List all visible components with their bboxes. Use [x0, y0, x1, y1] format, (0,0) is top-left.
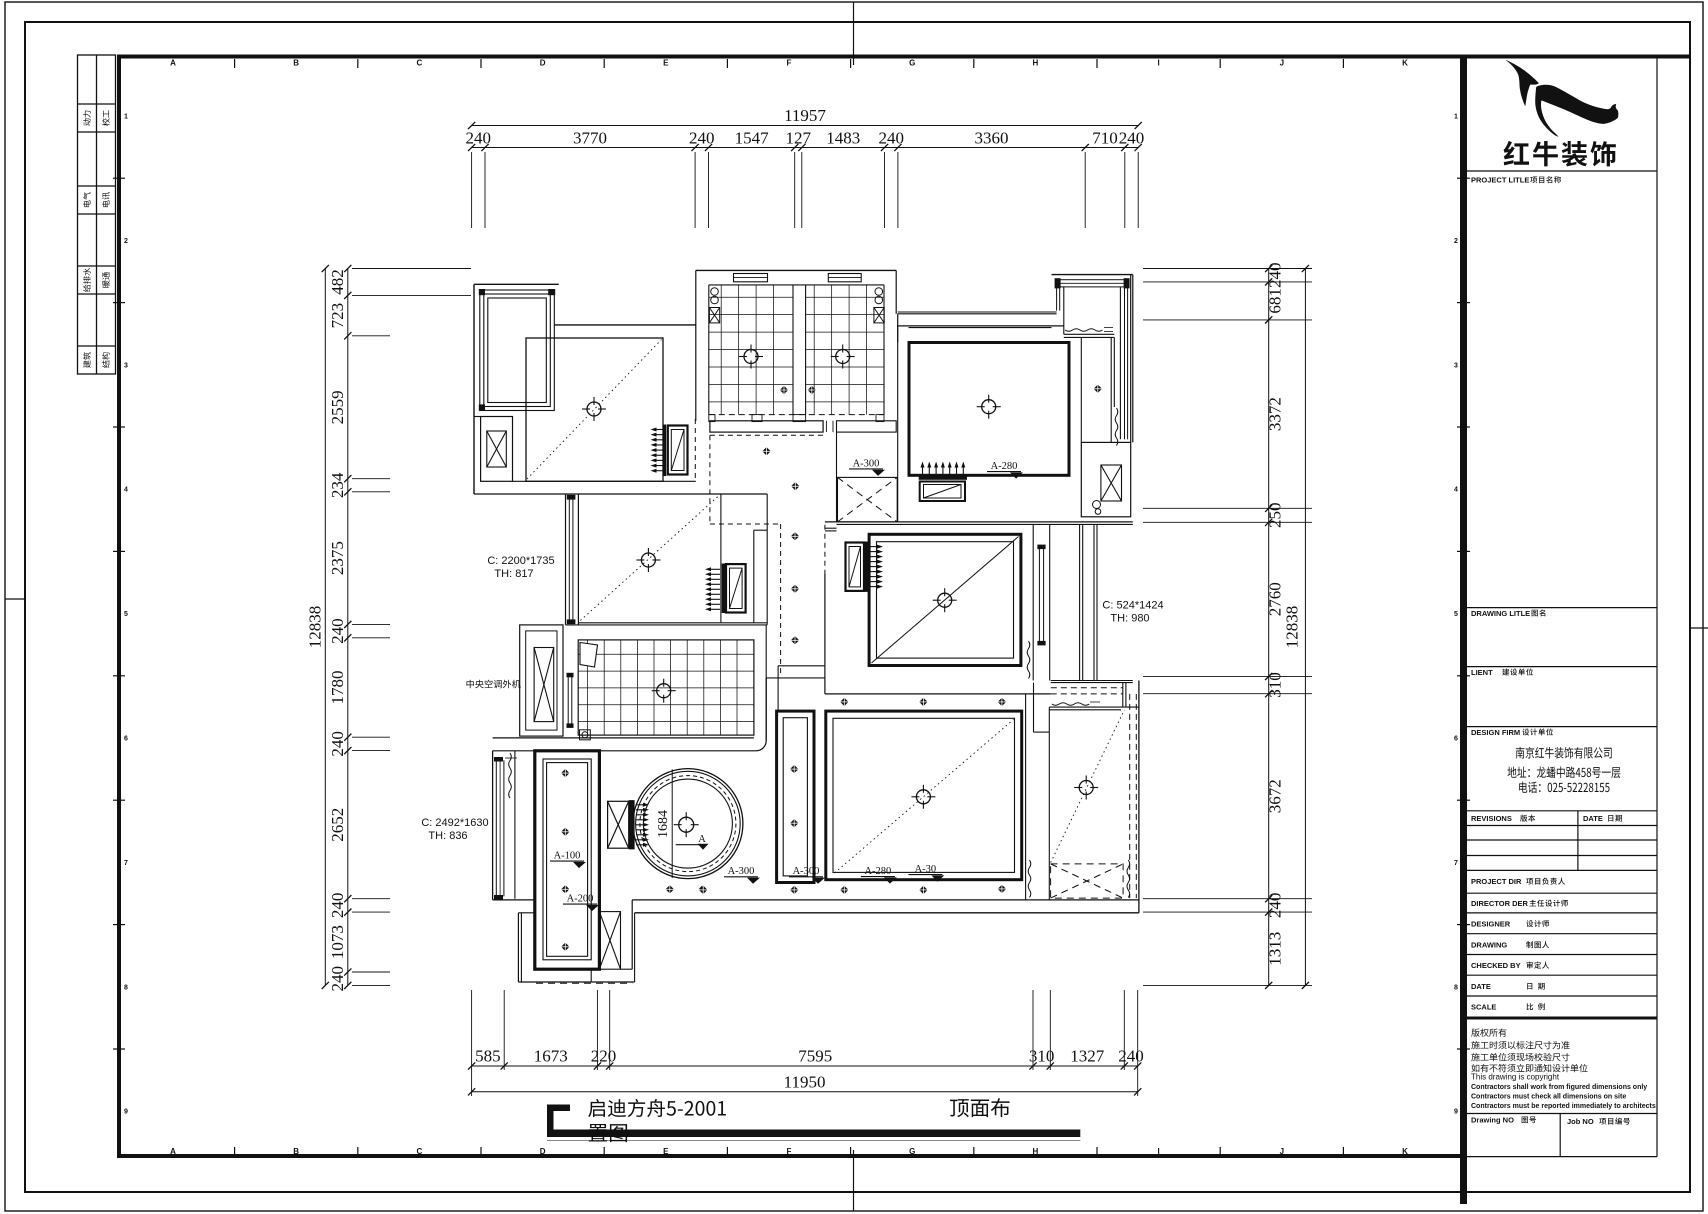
svg-text:A-300: A-300 — [793, 866, 820, 877]
svg-text:Drawing NO: Drawing NO — [1471, 1116, 1514, 1125]
svg-text:9: 9 — [1454, 1109, 1458, 1116]
svg-text:PROJECT LITLE: PROJECT LITLE — [1471, 176, 1529, 185]
svg-text:J: J — [1280, 1147, 1284, 1156]
svg-text:7595: 7595 — [798, 1047, 832, 1066]
svg-text:Contractors must be reported i: Contractors must be reported immediately… — [1471, 1103, 1656, 1110]
svg-text:240: 240 — [328, 731, 347, 757]
svg-text:H: H — [1033, 1147, 1039, 1156]
svg-text:1483: 1483 — [826, 129, 860, 148]
svg-text:B: B — [293, 59, 299, 68]
svg-text:482: 482 — [328, 269, 347, 295]
svg-text:4: 4 — [124, 487, 128, 494]
svg-text:DESIGNER: DESIGNER — [1471, 920, 1511, 929]
svg-text:240: 240 — [1266, 262, 1285, 288]
svg-text:8: 8 — [1454, 984, 1458, 991]
svg-text:PROJECT DIR: PROJECT DIR — [1471, 877, 1522, 886]
svg-text:12838: 12838 — [1283, 606, 1302, 649]
svg-text:127: 127 — [785, 129, 811, 148]
svg-text:G: G — [909, 59, 915, 68]
svg-text:A-300: A-300 — [728, 866, 755, 877]
svg-text:H: H — [1033, 59, 1039, 68]
svg-text:CHECKED BY: CHECKED BY — [1471, 961, 1521, 970]
svg-text:240: 240 — [689, 129, 715, 148]
svg-text:12838: 12838 — [306, 606, 325, 649]
svg-text:C: C — [417, 1147, 423, 1156]
svg-text:3360: 3360 — [975, 129, 1009, 148]
svg-text:240: 240 — [328, 618, 347, 644]
svg-text:234: 234 — [328, 472, 347, 498]
svg-text:2559: 2559 — [328, 390, 347, 424]
svg-text:K: K — [1402, 59, 1408, 68]
svg-text:2: 2 — [1454, 238, 1458, 245]
svg-text:3770: 3770 — [573, 129, 607, 148]
svg-text:6: 6 — [124, 736, 128, 743]
svg-text:3672: 3672 — [1266, 779, 1285, 813]
svg-text:1313: 1313 — [1266, 932, 1285, 966]
svg-text:1: 1 — [124, 114, 128, 121]
svg-text:3: 3 — [124, 362, 128, 369]
svg-text:C: 2492*1630: C: 2492*1630 — [421, 817, 488, 829]
svg-text:1073: 1073 — [328, 925, 347, 959]
svg-text:3372: 3372 — [1266, 397, 1285, 431]
svg-text:I: I — [1157, 59, 1159, 68]
svg-text:SCALE: SCALE — [1471, 1003, 1496, 1012]
svg-text:240: 240 — [1119, 129, 1145, 148]
svg-text:1684: 1684 — [656, 810, 671, 838]
svg-text:240: 240 — [1266, 893, 1285, 919]
svg-text:E: E — [663, 1147, 669, 1156]
svg-text:3: 3 — [1454, 362, 1458, 369]
svg-text:681: 681 — [1266, 288, 1285, 314]
svg-text:TH: 836: TH: 836 — [428, 830, 467, 842]
svg-text:A: A — [170, 59, 176, 68]
svg-text:A-280: A-280 — [991, 461, 1018, 472]
svg-text:C: C — [417, 59, 423, 68]
svg-text:A-100: A-100 — [554, 851, 581, 862]
svg-text:710: 710 — [1092, 129, 1118, 148]
svg-text:6: 6 — [1454, 736, 1458, 743]
svg-text:240: 240 — [328, 966, 347, 992]
svg-text:2652: 2652 — [328, 808, 347, 842]
svg-text:1: 1 — [1454, 114, 1458, 121]
svg-text:5: 5 — [1454, 611, 1458, 618]
svg-text:TH: 980: TH: 980 — [1110, 612, 1149, 624]
svg-text:D: D — [540, 59, 546, 68]
svg-text:DRAWING LITLE: DRAWING LITLE — [1471, 609, 1530, 618]
svg-text:240: 240 — [1118, 1047, 1144, 1066]
svg-text:240: 240 — [466, 129, 492, 148]
svg-text:1547: 1547 — [735, 129, 770, 148]
svg-text:D: D — [540, 1147, 546, 1156]
svg-text:A-300: A-300 — [853, 458, 880, 469]
svg-text:C: 2200*1735: C: 2200*1735 — [487, 555, 554, 567]
svg-text:9: 9 — [124, 1109, 128, 1116]
svg-text:1327: 1327 — [1070, 1047, 1105, 1066]
svg-text:DATE: DATE — [1583, 814, 1603, 823]
svg-text:1780: 1780 — [328, 671, 347, 705]
svg-text:220: 220 — [591, 1047, 617, 1066]
svg-text:This drawing is copyright: This drawing is copyright — [1471, 1073, 1560, 1082]
svg-text:2: 2 — [124, 238, 128, 245]
svg-text:5: 5 — [124, 611, 128, 618]
svg-text:LIENT: LIENT — [1471, 668, 1493, 677]
svg-text:Contractors shall work from fi: Contractors shall work from figured dime… — [1471, 1084, 1647, 1091]
svg-text:723: 723 — [328, 303, 347, 329]
svg-text:B: B — [293, 1147, 299, 1156]
svg-text:7: 7 — [124, 860, 128, 867]
svg-text:F: F — [787, 1147, 792, 1156]
svg-text:A-200: A-200 — [567, 894, 594, 905]
svg-text:I: I — [1157, 1147, 1159, 1156]
svg-text:A: A — [698, 834, 706, 845]
svg-text:E: E — [663, 59, 669, 68]
svg-text:REVISIONS: REVISIONS — [1471, 814, 1512, 823]
svg-text:A-280: A-280 — [864, 866, 891, 877]
svg-text:Job NO: Job NO — [1567, 1117, 1594, 1126]
svg-text:7: 7 — [1454, 860, 1458, 867]
svg-text:TH: 817: TH: 817 — [494, 568, 533, 580]
svg-text:4: 4 — [1454, 487, 1458, 494]
svg-text:585: 585 — [475, 1047, 501, 1066]
svg-text:1673: 1673 — [534, 1047, 568, 1066]
svg-text:Contractors must check all dim: Contractors must check all dimensions on… — [1471, 1094, 1626, 1101]
svg-text:8: 8 — [124, 984, 128, 991]
svg-text:DESIGN FIRM: DESIGN FIRM — [1471, 728, 1520, 737]
svg-text:240: 240 — [878, 129, 904, 148]
svg-text:G: G — [909, 1147, 915, 1156]
svg-text:K: K — [1402, 1147, 1408, 1156]
svg-text:A: A — [170, 1147, 176, 1156]
svg-text:J: J — [1280, 59, 1284, 68]
svg-text:A-30: A-30 — [915, 864, 937, 875]
svg-text:DRAWING: DRAWING — [1471, 941, 1507, 950]
svg-text:DATE: DATE — [1471, 982, 1491, 991]
svg-text:2375: 2375 — [328, 541, 347, 575]
svg-text:250: 250 — [1266, 503, 1285, 529]
svg-text:DIRECTOR DER: DIRECTOR DER — [1471, 899, 1529, 908]
svg-text:11950: 11950 — [784, 1072, 826, 1091]
svg-text:C: 524*1424: C: 524*1424 — [1102, 599, 1163, 611]
svg-text:F: F — [787, 59, 792, 68]
svg-text:240: 240 — [328, 893, 347, 919]
svg-text:11957: 11957 — [784, 106, 826, 125]
